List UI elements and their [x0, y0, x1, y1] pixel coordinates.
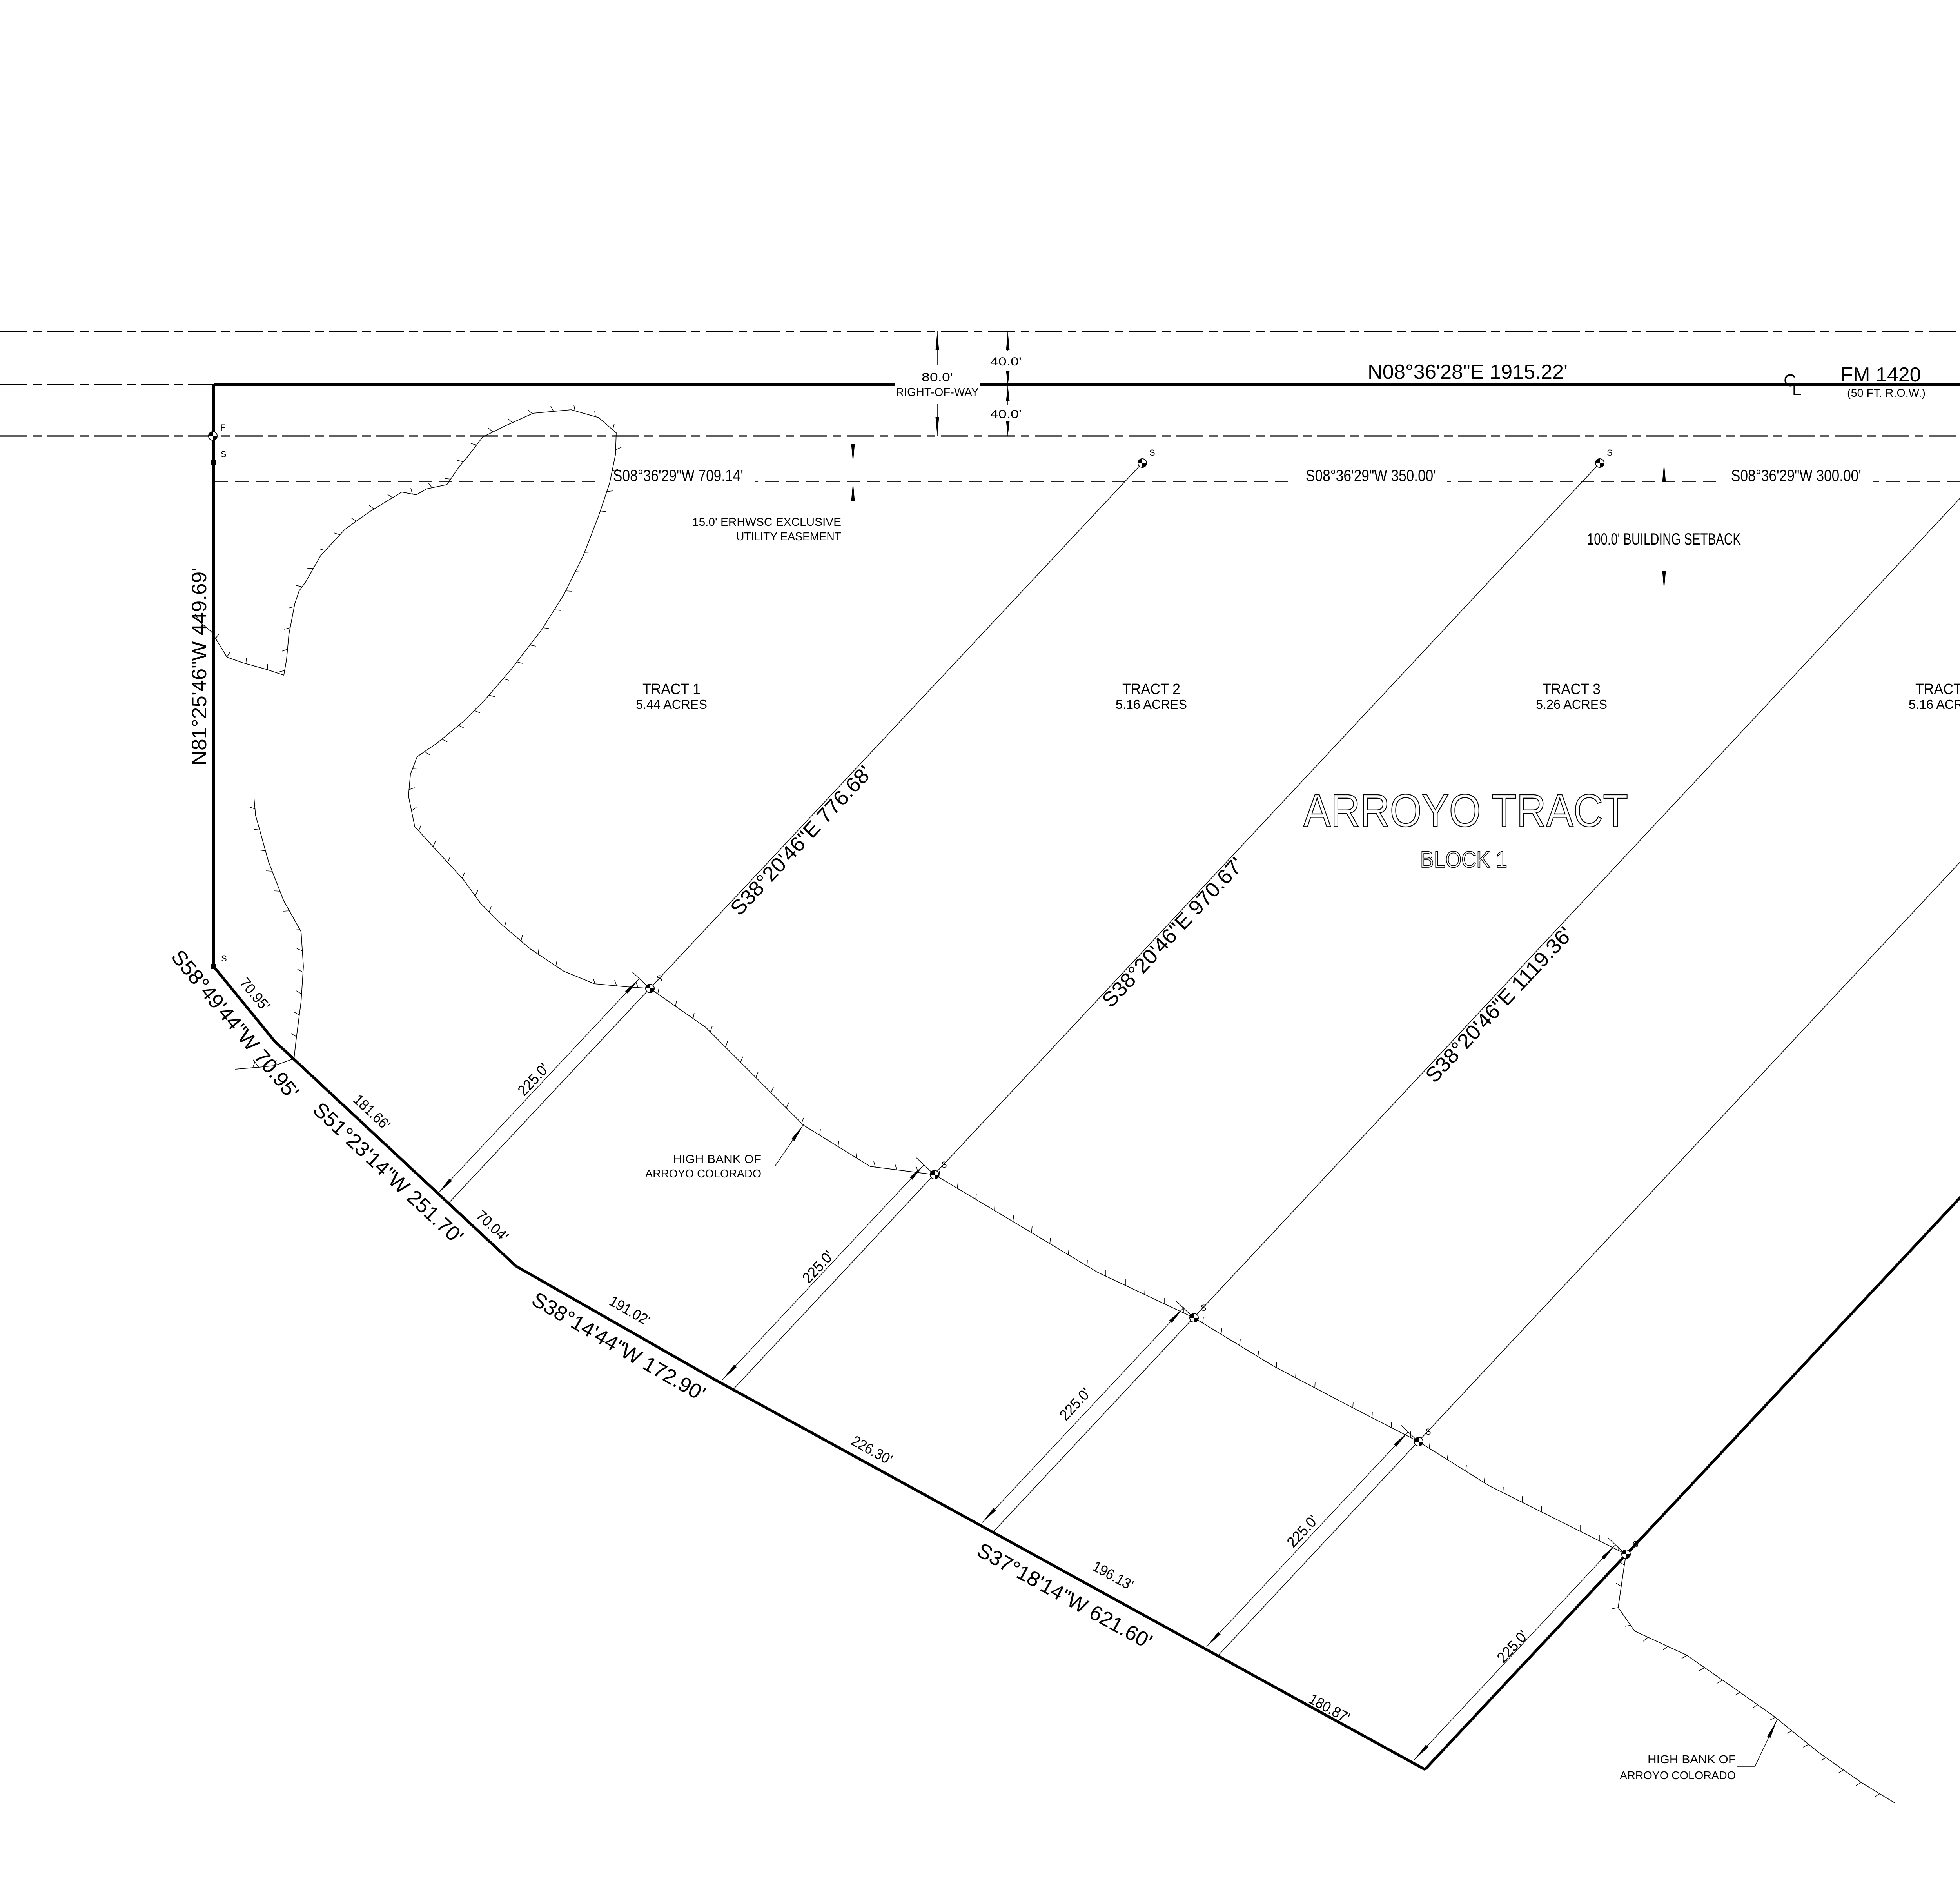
- svg-text:S08°36'29"W 300.00': S08°36'29"W 300.00': [1731, 466, 1861, 485]
- svg-text:5.16 ACRES: 5.16 ACRES: [1909, 697, 1960, 712]
- svg-text:HIGH BANK OF: HIGH BANK OF: [1648, 1753, 1736, 1766]
- svg-text:TRACT 4: TRACT 4: [1915, 681, 1960, 698]
- svg-text:RIGHT-OF-WAY: RIGHT-OF-WAY: [896, 386, 979, 399]
- svg-text:S: S: [1425, 1427, 1431, 1437]
- svg-text:S08°36'29"W 709.14': S08°36'29"W 709.14': [613, 466, 743, 485]
- svg-text:F: F: [220, 423, 225, 432]
- svg-text:UTILITY EASEMENT: UTILITY EASEMENT: [736, 530, 841, 543]
- svg-text:L: L: [1792, 380, 1802, 399]
- svg-text:FM 1420: FM 1420: [1841, 363, 1921, 386]
- svg-text:100.0' BUILDING SETBACK: 100.0' BUILDING SETBACK: [1587, 530, 1741, 548]
- svg-text:S08°36'29"W 350.00': S08°36'29"W 350.00': [1306, 466, 1436, 485]
- svg-text:5.16 ACRES: 5.16 ACRES: [1116, 697, 1187, 712]
- svg-text:80.0': 80.0': [922, 371, 953, 384]
- svg-text:S: S: [1607, 448, 1613, 458]
- svg-text:HIGH BANK OF: HIGH BANK OF: [673, 1153, 761, 1166]
- svg-text:5.26 ACRES: 5.26 ACRES: [1536, 697, 1607, 712]
- svg-text:S: S: [221, 449, 227, 459]
- svg-text:ARROYO TRACT: ARROYO TRACT: [1303, 785, 1628, 837]
- svg-text:S: S: [941, 1160, 947, 1170]
- svg-text:15.0' ERHWSC EXCLUSIVE: 15.0' ERHWSC EXCLUSIVE: [692, 516, 841, 529]
- svg-text:ARROYO COLORADO: ARROYO COLORADO: [1620, 1769, 1736, 1782]
- svg-text:TRACT 1: TRACT 1: [642, 681, 701, 698]
- svg-text:S: S: [657, 974, 662, 983]
- svg-text:TRACT 3: TRACT 3: [1543, 681, 1601, 698]
- svg-text:S: S: [1149, 448, 1155, 458]
- svg-text:S: S: [1201, 1303, 1207, 1313]
- svg-text:TRACT 2: TRACT 2: [1122, 681, 1180, 698]
- svg-text:BLOCK 1: BLOCK 1: [1420, 847, 1507, 872]
- svg-text:ARROYO COLORADO: ARROYO COLORADO: [645, 1168, 761, 1180]
- svg-text:S: S: [1633, 1539, 1639, 1549]
- svg-text:40.0': 40.0': [990, 355, 1022, 368]
- svg-text:5.44 ACRES: 5.44 ACRES: [636, 697, 707, 712]
- svg-text:40.0': 40.0': [990, 408, 1022, 421]
- svg-text:N81°25'46"W 449.69': N81°25'46"W 449.69': [188, 568, 211, 766]
- svg-text:N08°36'28"E 1915.22': N08°36'28"E 1915.22': [1368, 361, 1568, 383]
- svg-text:S: S: [221, 954, 227, 963]
- svg-text:(50 FT. R.O.W.): (50 FT. R.O.W.): [1847, 387, 1926, 400]
